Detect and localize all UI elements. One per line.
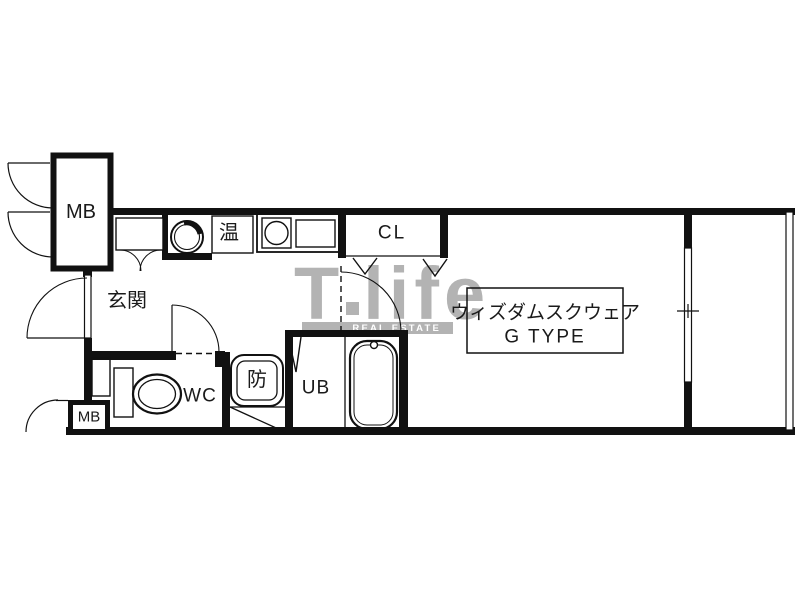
closet-folding-door-mark [423, 259, 447, 276]
main-room-window-icon [677, 248, 699, 382]
wall-window-top-seg [684, 215, 692, 248]
kitchen-sink-icon [296, 220, 335, 247]
wall-laundry-south [162, 253, 212, 260]
bathtub-icon [350, 341, 397, 429]
shoe-cabinet [116, 218, 163, 271]
wall-top [108, 208, 795, 215]
balcony-railing [786, 212, 793, 430]
stove-burner-icon [262, 218, 291, 248]
floorplan-page: Tlife REAL ESTATE [0, 0, 800, 600]
wall-wc-east [222, 352, 230, 433]
closet-area [346, 256, 447, 276]
wall-west-lower [84, 338, 92, 404]
wall-bottom [66, 427, 795, 435]
wall-window-bottom-seg [684, 382, 692, 427]
closet-folding-door-mark [353, 258, 377, 274]
wall-ub-east [399, 330, 408, 433]
wc-washbasin-icon [92, 358, 110, 396]
wall-cl-east [440, 208, 448, 258]
wall-ub-west [285, 330, 293, 433]
label-waterproof-pan: 防 [247, 370, 267, 390]
label-water-heater: 温 [219, 223, 239, 243]
label-meter-box-top: MB [66, 202, 96, 222]
label-unit-bath: UB [302, 379, 330, 398]
label-meter-box-bottom: MB [78, 410, 101, 425]
wc-door-arc [172, 305, 219, 352]
wall-ub-north [285, 330, 407, 337]
main-room-door [341, 266, 401, 332]
label-closet: CL [378, 224, 406, 243]
washing-machine-icon [171, 221, 203, 253]
front-door [27, 275, 91, 338]
toilet-icon [114, 368, 181, 417]
meter-box-top-doors [8, 163, 53, 257]
unit-type-subtitle: G TYPE [504, 328, 585, 347]
unit-type-title: ウィズダムスクウェア [450, 304, 640, 323]
kitchen-counter [257, 213, 340, 252]
label-entrance: 玄関 [107, 291, 147, 311]
meter-box-bottom-door [26, 400, 68, 432]
label-toilet-room: WC [183, 387, 217, 406]
